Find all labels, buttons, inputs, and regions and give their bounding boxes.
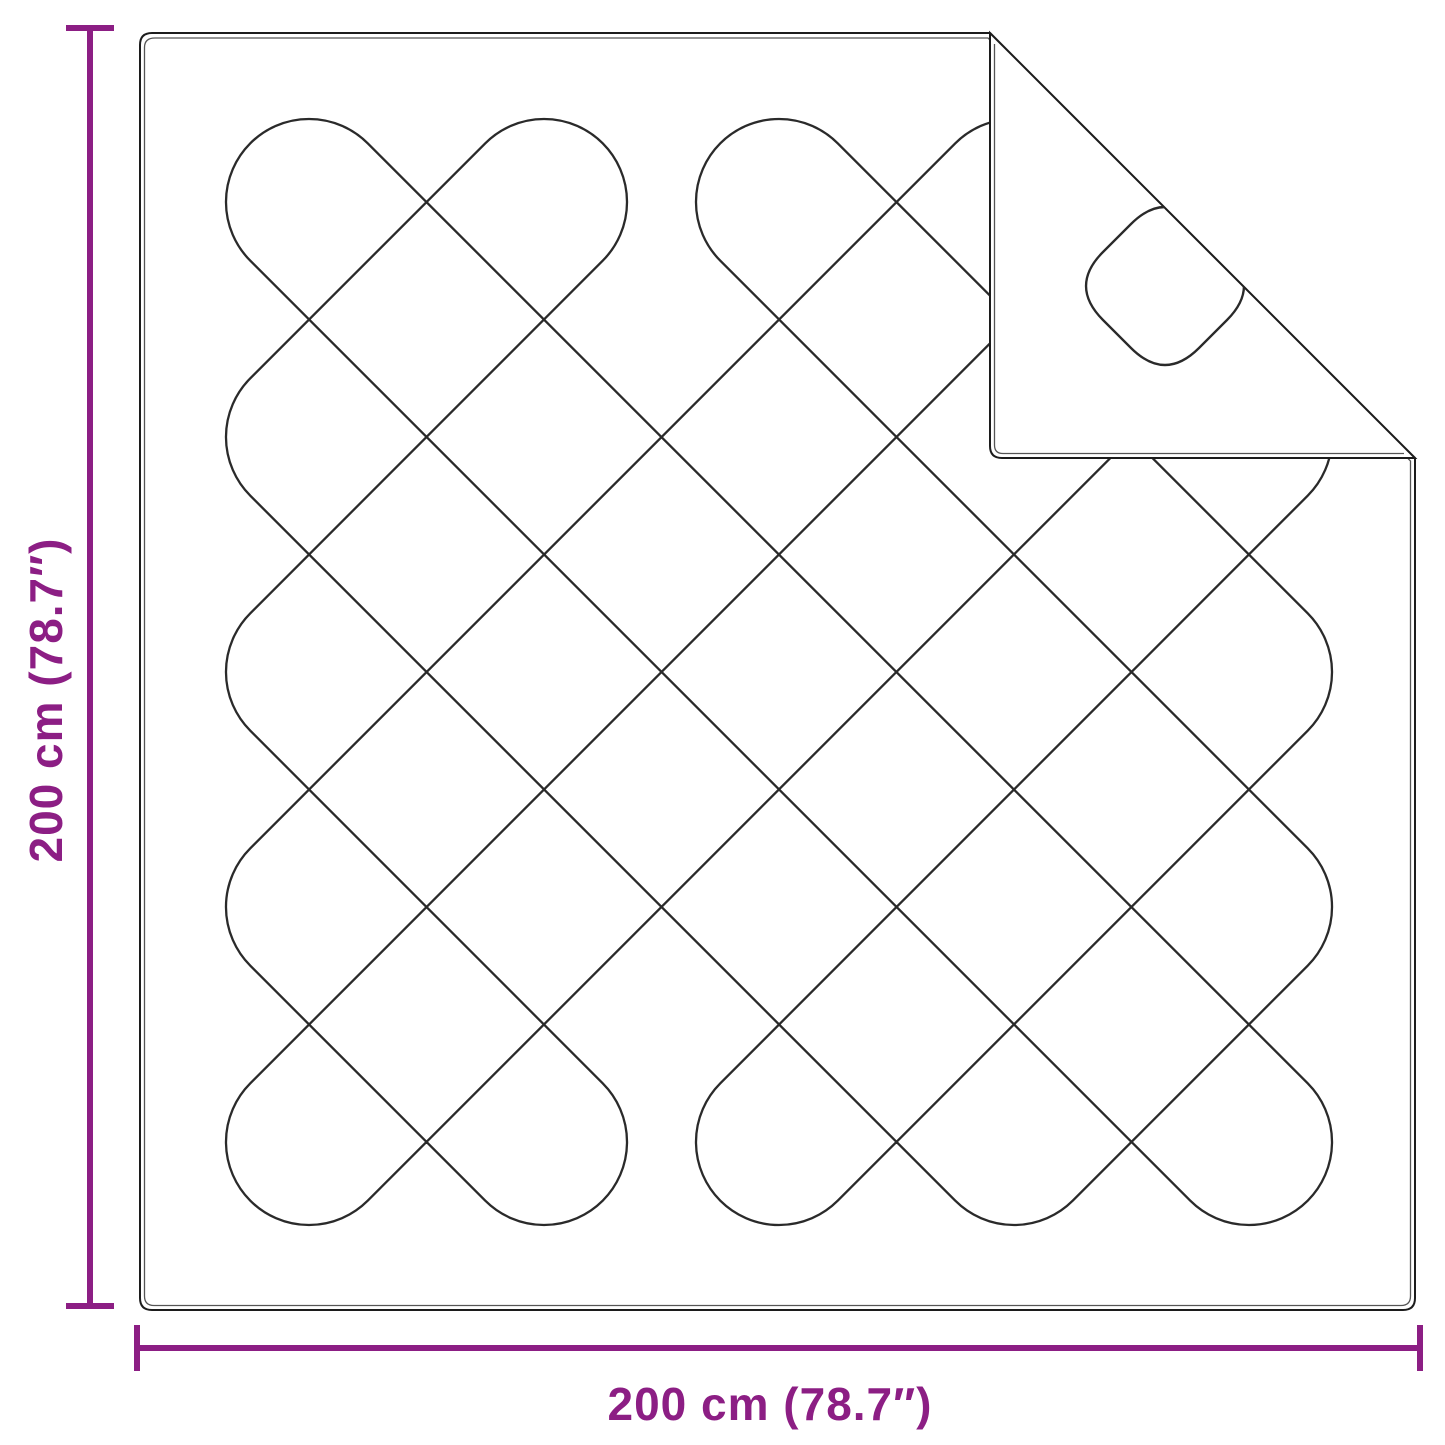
horizontal-dimension-arrow: [137, 1325, 1420, 1371]
blanket-drawing: [140, 33, 1415, 1310]
blanket-dimension-diagram: 200 cm (78.7″) 200 cm (78.7″): [0, 0, 1445, 1445]
flap-face: [990, 33, 1415, 458]
vertical-dimension-arrow: [66, 28, 114, 1306]
blanket-outline: [140, 33, 1415, 1310]
width-dimension-label: 200 cm (78.7″): [608, 1378, 933, 1430]
blanket-outline-inner: [145, 38, 1411, 1306]
height-dimension-label: 200 cm (78.7″): [20, 538, 72, 863]
folded-corner-flap: [990, 33, 1415, 458]
diagram-stage: 200 cm (78.7″) 200 cm (78.7″): [0, 0, 1445, 1445]
dimension-annotations: [66, 28, 1420, 1371]
